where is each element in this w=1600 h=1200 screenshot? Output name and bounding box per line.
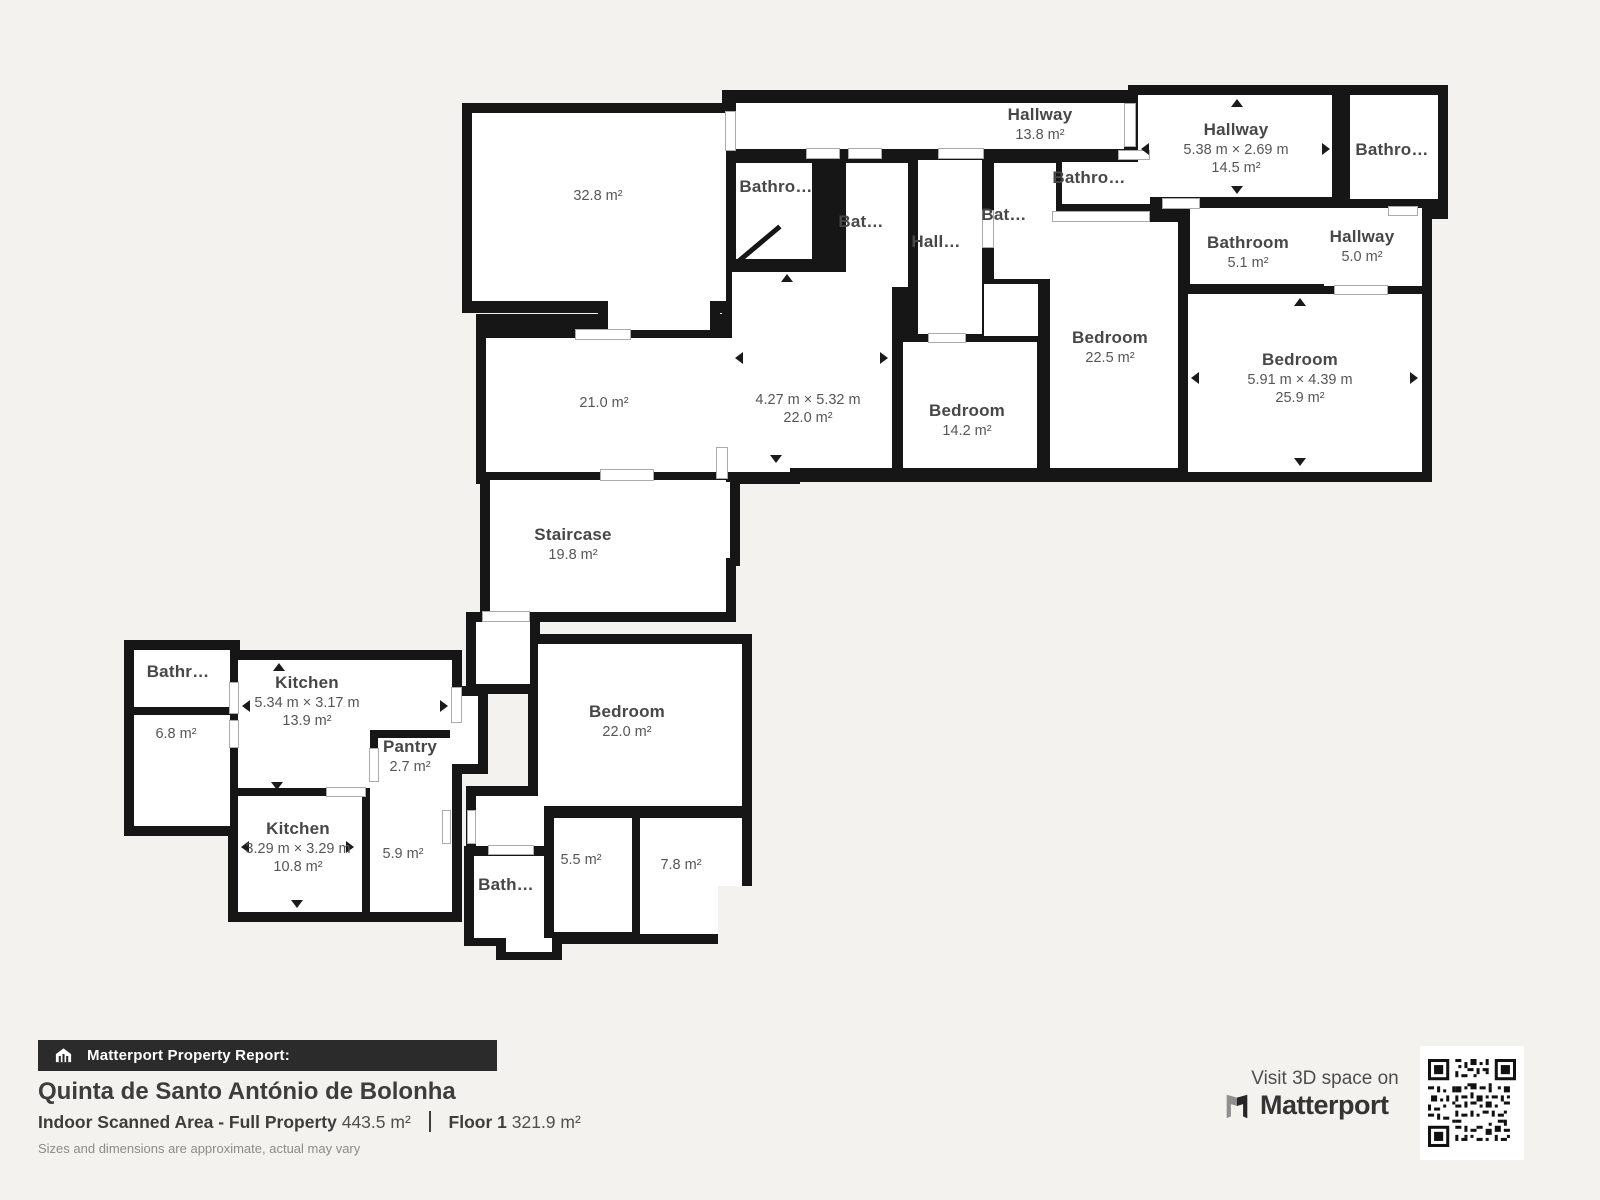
room-label: Staircase19.8 m²: [534, 525, 611, 563]
matterport-logo: Matterport: [1222, 1090, 1389, 1121]
outline-notch: [718, 886, 752, 944]
vestibule: [476, 622, 530, 684]
floor-plan: 32.8 m² 21.0 m² Staircase19.8 m² Hallway…: [0, 0, 1600, 1200]
room-label: Hallway5.38 m × 2.69 m14.5 m²: [1183, 120, 1288, 176]
dimension-arrow: [1141, 143, 1149, 155]
dimension-arrow: [781, 274, 793, 282]
dimension-arrow: [291, 900, 303, 908]
qr-panel: [1420, 1046, 1524, 1160]
room-bedroom-22-0-main: [732, 272, 892, 468]
door: [716, 447, 728, 479]
scanned-area-label: Indoor Scanned Area - Full Property: [38, 1112, 337, 1132]
visit-3d-label: Visit 3D space on: [1240, 1068, 1410, 1090]
dimension-arrow: [1231, 99, 1243, 107]
disclaimer: Sizes and dimensions are approximate, ac…: [38, 1141, 360, 1156]
room-living-32-8: [472, 113, 726, 301]
door: [326, 787, 366, 797]
corridor: [984, 284, 1038, 336]
room-label: 5.9 m²: [382, 844, 423, 862]
door: [467, 810, 476, 844]
area-stats: Indoor Scanned Area - Full Property 443.…: [38, 1111, 581, 1133]
room-label: Bathro…: [1355, 140, 1428, 160]
room-label: Bathro…: [739, 177, 812, 197]
room-label: Pantry2.7 m²: [383, 737, 437, 775]
room-label: Bedroom22.0 m²: [589, 702, 665, 740]
floor-label: Floor 1: [449, 1112, 507, 1132]
room-label: Bathroom5.1 m²: [1207, 233, 1289, 271]
room-label: Bedroom22.5 m²: [1072, 328, 1148, 366]
door: [482, 611, 530, 622]
room-label: Bath…: [478, 875, 534, 895]
matterport-wordmark: Matterport: [1260, 1090, 1389, 1121]
property-name: Quinta de Santo António de Bolonha: [38, 1078, 456, 1106]
door: [369, 748, 379, 782]
dimension-arrow: [735, 352, 743, 364]
room-label: 6.8 m²: [155, 724, 196, 742]
room-label: Hall…: [911, 232, 960, 252]
door: [928, 333, 966, 343]
room-label: Kitchen3.29 m × 3.29 m10.8 m²: [245, 819, 350, 875]
door: [1124, 103, 1136, 147]
qr-code: [1428, 1059, 1516, 1147]
door: [229, 720, 239, 748]
door: [442, 810, 451, 844]
room-label: Hallway13.8 m²: [1008, 105, 1073, 143]
door: [229, 682, 239, 714]
room-5-5: [554, 818, 632, 932]
door: [575, 329, 631, 340]
dimension-arrow: [770, 455, 782, 463]
dimension-arrow: [1294, 458, 1306, 466]
door: [488, 845, 534, 855]
house-icon: [54, 1046, 73, 1065]
door: [1162, 198, 1200, 209]
room-label: Bat…: [838, 212, 883, 232]
dimension-arrow: [440, 700, 448, 712]
report-bar: Matterport Property Report:: [38, 1040, 497, 1071]
door: [806, 148, 840, 159]
dimension-arrow: [1322, 143, 1330, 155]
room-label: 5.5 m²: [560, 850, 601, 868]
dimension-arrow: [1231, 186, 1243, 194]
room-label: Bedroom14.2 m²: [929, 401, 1005, 439]
room-label: 21.0 m²: [579, 393, 628, 411]
room-label: 4.27 m × 5.32 m22.0 m²: [755, 390, 860, 426]
room-label: Bat…: [981, 205, 1026, 225]
vestibule: [476, 796, 544, 846]
dimension-arrow: [1294, 298, 1306, 306]
door: [848, 148, 882, 159]
room-label: 32.8 m²: [573, 186, 622, 204]
dimension-arrow: [1410, 372, 1418, 384]
scanned-area-value: 443.5 m²: [342, 1112, 411, 1132]
room-label: Hallway5.0 m²: [1330, 227, 1395, 265]
door: [938, 148, 984, 159]
door: [451, 687, 462, 723]
dimension-arrow: [880, 352, 888, 364]
room-bathroom-bottom: [506, 938, 552, 952]
matterport-icon: [1222, 1091, 1252, 1121]
room-label: Bathro…: [1052, 168, 1125, 188]
dimension-arrow: [273, 663, 285, 671]
room-label: Kitchen5.34 m × 3.17 m13.9 m²: [254, 673, 359, 729]
room-label: Bedroom5.91 m × 4.39 m25.9 m²: [1247, 350, 1352, 406]
door: [1388, 206, 1418, 216]
room-label: 7.8 m²: [660, 855, 701, 873]
door: [600, 469, 654, 481]
divider: [429, 1111, 431, 1132]
door: [725, 111, 736, 151]
room-bathroom-bottom: [474, 856, 544, 938]
door: [1334, 285, 1388, 295]
door: [1052, 211, 1150, 222]
floor-value: 321.9 m²: [512, 1112, 581, 1132]
dimension-arrow: [1191, 372, 1199, 384]
room-label: Bathr…: [147, 662, 210, 682]
dimension-arrow: [271, 782, 283, 790]
corridor: [608, 294, 710, 330]
dimension-arrow: [242, 700, 250, 712]
report-bar-label: Matterport Property Report:: [87, 1047, 290, 1064]
room-staircase: [646, 482, 730, 558]
